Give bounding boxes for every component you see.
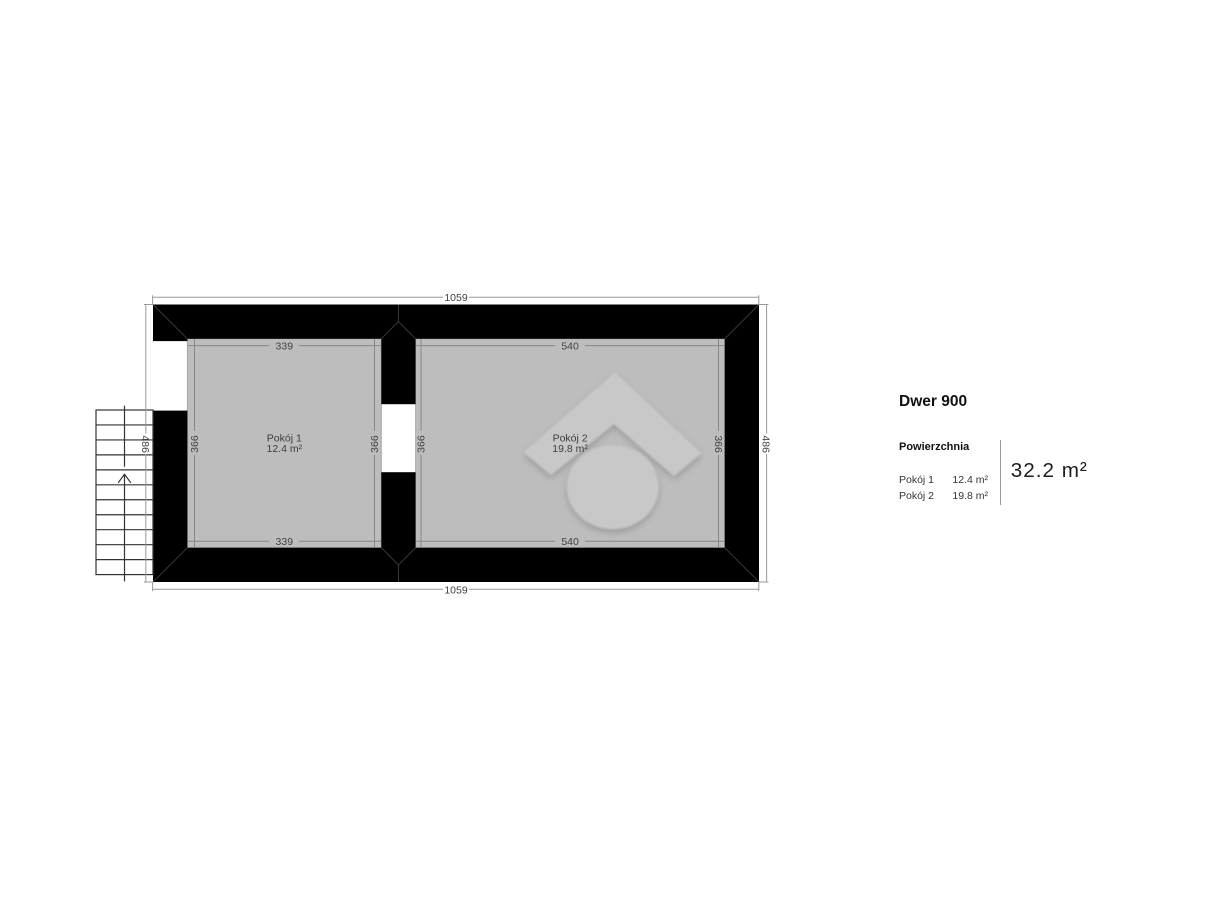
svg-text:486: 486 [139,435,151,453]
svg-text:540: 540 [561,340,579,352]
svg-text:19.8 m²: 19.8 m² [552,443,588,455]
svg-text:1059: 1059 [444,584,468,596]
svg-text:339: 339 [276,340,294,352]
svg-text:1059: 1059 [444,292,468,304]
svg-text:366: 366 [712,435,724,453]
svg-text:486: 486 [760,435,772,453]
svg-text:339: 339 [276,536,294,548]
svg-text:366: 366 [416,435,428,453]
svg-text:366: 366 [369,435,381,453]
svg-text:366: 366 [189,435,201,453]
svg-text:12.4 m²: 12.4 m² [266,443,302,455]
svg-text:540: 540 [561,536,579,548]
